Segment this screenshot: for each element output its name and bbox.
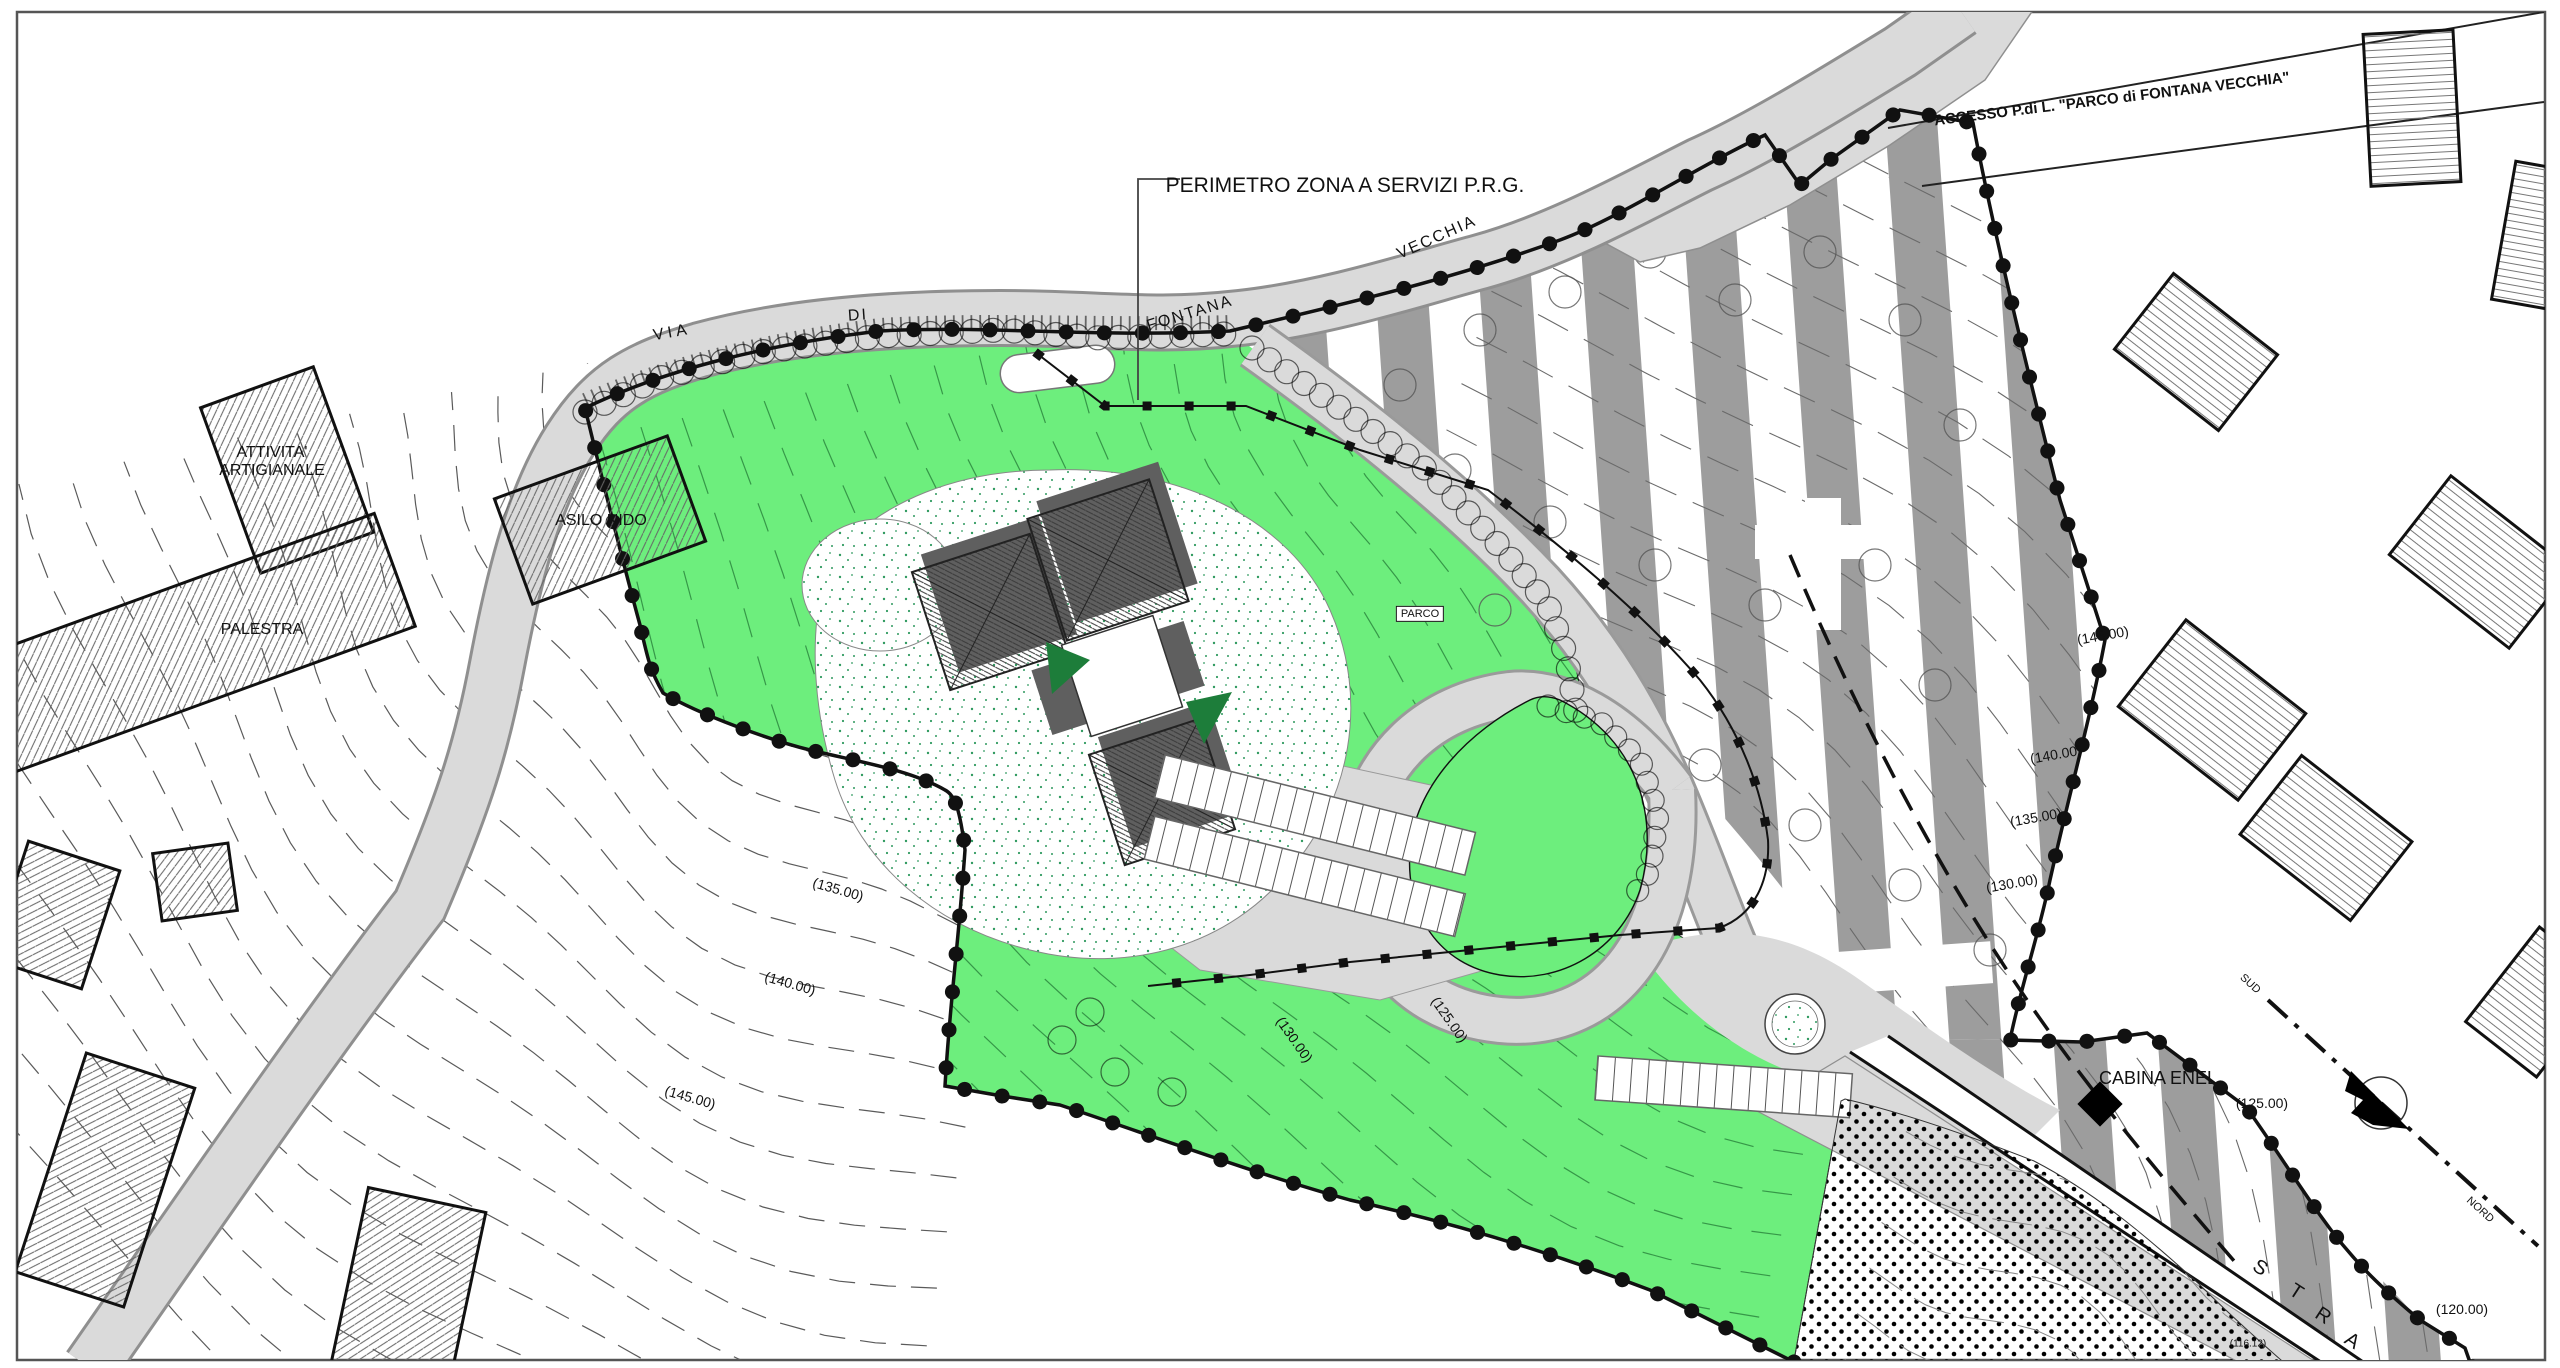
roundabout-planter-fill [1772,1001,1818,1047]
site-plan-drawing [0,0,2560,1368]
site-plan-page: PERIMETRO ZONA A SERVIZI P.R.G.ACCESSO P… [0,0,2560,1368]
